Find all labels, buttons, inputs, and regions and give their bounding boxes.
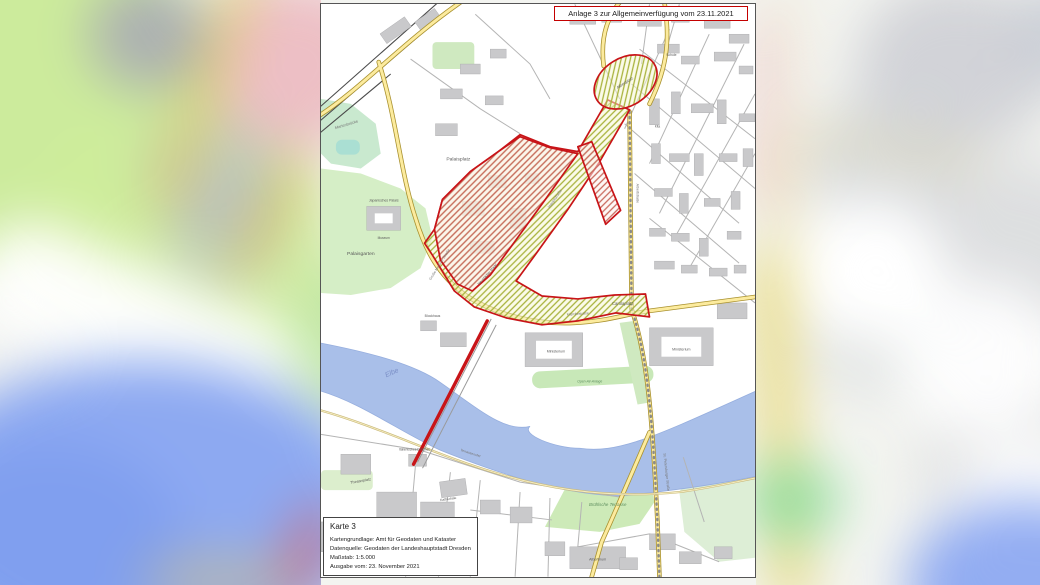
label-japanisches-palais: Japanisches Palais bbox=[369, 198, 399, 202]
label-bruehlsche-terrasse: Brühlsche Terrasse bbox=[589, 502, 627, 507]
label-albertinum: Albertinum bbox=[589, 558, 606, 562]
label-ministerium-2: Ministerium bbox=[672, 348, 690, 352]
label-palaisgarten: Palaisgarten bbox=[347, 251, 375, 257]
label-schule: Schule bbox=[666, 53, 676, 57]
background-blur-left bbox=[0, 0, 321, 585]
legend-line-dataset: Datenquelle: Geodaten der Landeshauptsta… bbox=[330, 545, 471, 554]
label-carolaplatz: Carolaplatz bbox=[612, 301, 633, 306]
label-japanisches-palais-sub: Museum bbox=[378, 236, 391, 240]
legend-title: Karte 3 bbox=[330, 522, 471, 531]
legend-box: Karte 3 Kartengrundlage: Amt für Geodate… bbox=[323, 517, 478, 576]
label-italienisches-doerfchen: Italienisches Dörfchen bbox=[399, 447, 430, 451]
map-page: Elbe Marienbrücke Palaisplatz Palaisgart… bbox=[320, 3, 756, 578]
label-open-air: Open-Air-Anlage bbox=[577, 380, 602, 384]
background-blur-right bbox=[756, 0, 1040, 585]
label-palaisplatz: Palaisplatz bbox=[446, 157, 471, 163]
label-blockhaus: Blockhaus bbox=[425, 314, 441, 318]
annotation-box: Anlage 3 zur Allgemeinverfügung vom 23.1… bbox=[554, 6, 748, 21]
legend-line-date: Ausgabe vom: 23. November 2021 bbox=[330, 563, 471, 572]
label-kita: Kita bbox=[655, 125, 661, 129]
city-map: Elbe Marienbrücke Palaisplatz Palaisgart… bbox=[321, 4, 755, 577]
legend-line-scale: Maßstab: 1:5.000 bbox=[330, 554, 471, 563]
annotation-text: Anlage 3 zur Allgemeinverfügung vom 23.1… bbox=[568, 9, 733, 18]
label-albertstrasse: Albertstraße bbox=[636, 184, 640, 204]
label-ministerium-1: Ministerium bbox=[547, 350, 565, 354]
legend-line-source: Kartengrundlage: Amt für Geodaten und Ka… bbox=[330, 536, 471, 545]
